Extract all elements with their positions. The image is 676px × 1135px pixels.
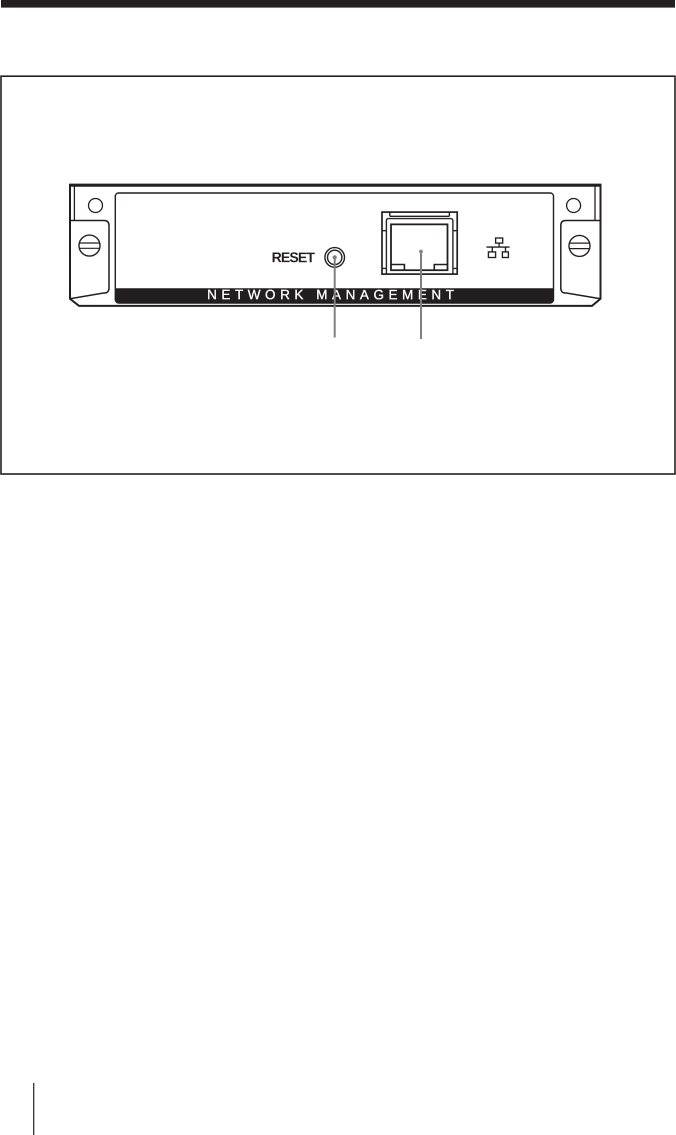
- svg-text:RESET: RESET: [272, 249, 316, 265]
